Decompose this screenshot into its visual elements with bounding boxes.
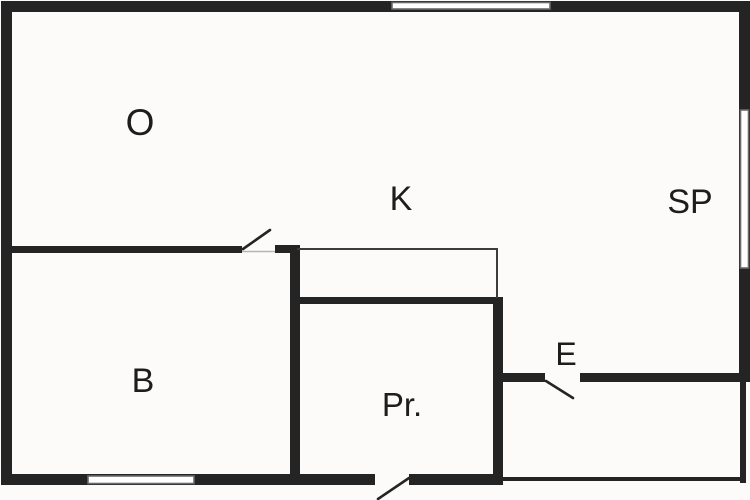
wall-room-o-b (1, 246, 242, 253)
room-label-o: O (126, 102, 155, 143)
room-label-sp: SP (667, 183, 712, 221)
window-top (392, 3, 550, 10)
wall-room-pr-top (293, 297, 503, 304)
room-label-e: E (555, 336, 576, 372)
door-gap-e (545, 371, 580, 383)
wall-entry-bottom (503, 477, 746, 481)
wall-exterior-bottom (1, 474, 503, 485)
room-label-pr: Pr. (382, 386, 422, 423)
wall-exterior-top (1, 1, 749, 12)
wall-room-pr-e (493, 297, 503, 485)
wall-room-b-pr (290, 245, 300, 485)
window-right (741, 110, 749, 268)
room-label-b: B (132, 362, 155, 400)
window-bottom (88, 476, 194, 484)
floor-plan: O K SP B Pr. E (0, 0, 750, 500)
wall-room-e-top (503, 373, 741, 382)
wall-entry-right (740, 382, 746, 483)
floor-plan-canvas: O K SP B Pr. E (0, 0, 750, 500)
wall-exterior-left (1, 1, 12, 485)
room-label-k: K (390, 180, 413, 218)
door-gap-pr (375, 472, 409, 486)
